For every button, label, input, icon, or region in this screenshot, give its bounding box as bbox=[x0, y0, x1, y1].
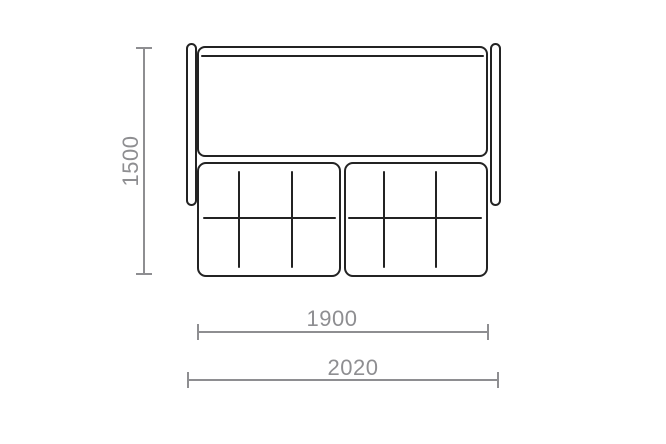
seat-cushion-left bbox=[197, 162, 341, 277]
stitch-line-vertical-3 bbox=[383, 171, 385, 268]
seat-width-dimension-label: 1900 bbox=[307, 308, 358, 330]
height-dimension-label: 1500 bbox=[120, 136, 142, 187]
height-dimension-line bbox=[143, 48, 145, 275]
height-dimension-tick-top bbox=[136, 47, 152, 49]
sofa-armrest-left bbox=[186, 43, 197, 206]
seat-width-dimension-tick-right bbox=[487, 324, 489, 340]
overall-width-dimension-label: 2020 bbox=[328, 357, 379, 379]
sofa-armrest-right bbox=[490, 43, 501, 206]
stitch-line-vertical-4 bbox=[435, 171, 437, 268]
backrest-seam-line bbox=[201, 55, 484, 57]
seat-width-dimension-tick-left bbox=[197, 324, 199, 340]
seat-cushion-right bbox=[344, 162, 488, 277]
stitch-line-horizontal-right bbox=[348, 217, 482, 219]
seat-width-dimension-line bbox=[198, 331, 488, 333]
dimension-drawing-canvas: 1500 1900 2020 bbox=[0, 0, 666, 444]
overall-width-dimension-tick-right bbox=[497, 372, 499, 388]
stitch-line-horizontal-left bbox=[203, 217, 336, 219]
stitch-line-vertical-2 bbox=[291, 171, 293, 268]
stitch-line-vertical-1 bbox=[238, 171, 240, 268]
sofa-backrest bbox=[197, 46, 488, 157]
height-dimension-tick-bottom bbox=[136, 273, 152, 275]
overall-width-dimension-tick-left bbox=[187, 372, 189, 388]
